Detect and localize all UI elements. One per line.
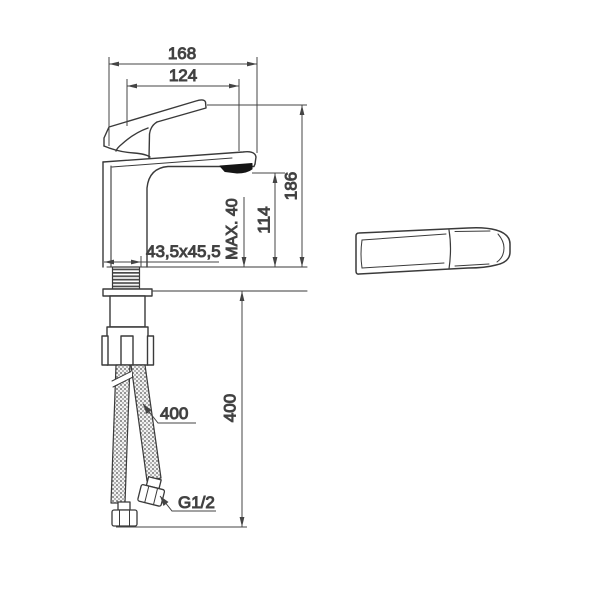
top-view-inner-lines [361,231,504,268]
dim-base-footprint: 43,5x45,5 [104,242,221,267]
dim-spout-height: 114 [252,173,285,267]
mounting-flange [103,289,152,296]
dim-label-400: 400 [220,394,239,422]
handle-lever [104,100,206,158]
mounting-tab-left [102,336,108,365]
faucet-dimension-drawing: 168 124 186 114 [0,0,600,600]
hose-right [131,365,161,481]
dim-label-max40: MAX. 40 [224,198,241,259]
dim-spout-projection: 124 [127,66,239,151]
threaded-shank [113,267,140,289]
mounting-body [102,327,154,365]
handle-top-view [356,228,510,274]
dim-label-thread: G1/2 [178,493,215,512]
dim-label-124: 124 [169,66,197,85]
dim-label-168: 168 [168,44,196,63]
hose-fitting-left [112,502,137,526]
technical-drawing-canvas: 168 124 186 114 [0,0,600,600]
dim-label-base: 43,5x45,5 [146,242,221,261]
dim-label-114: 114 [254,206,273,233]
faucet-side-view [102,100,307,526]
dim-label-hose-callout: 400 [160,404,188,423]
aerator [220,164,252,174]
dim-max-deck-thickness: MAX. 40 [224,197,246,267]
mounting-slot [121,336,133,365]
top-view-divider [449,230,451,269]
dim-label-186: 186 [281,172,300,200]
mounting-tab-right [148,336,154,365]
mounting-nut [110,296,145,327]
callout-thread: G1/2 [160,493,216,512]
